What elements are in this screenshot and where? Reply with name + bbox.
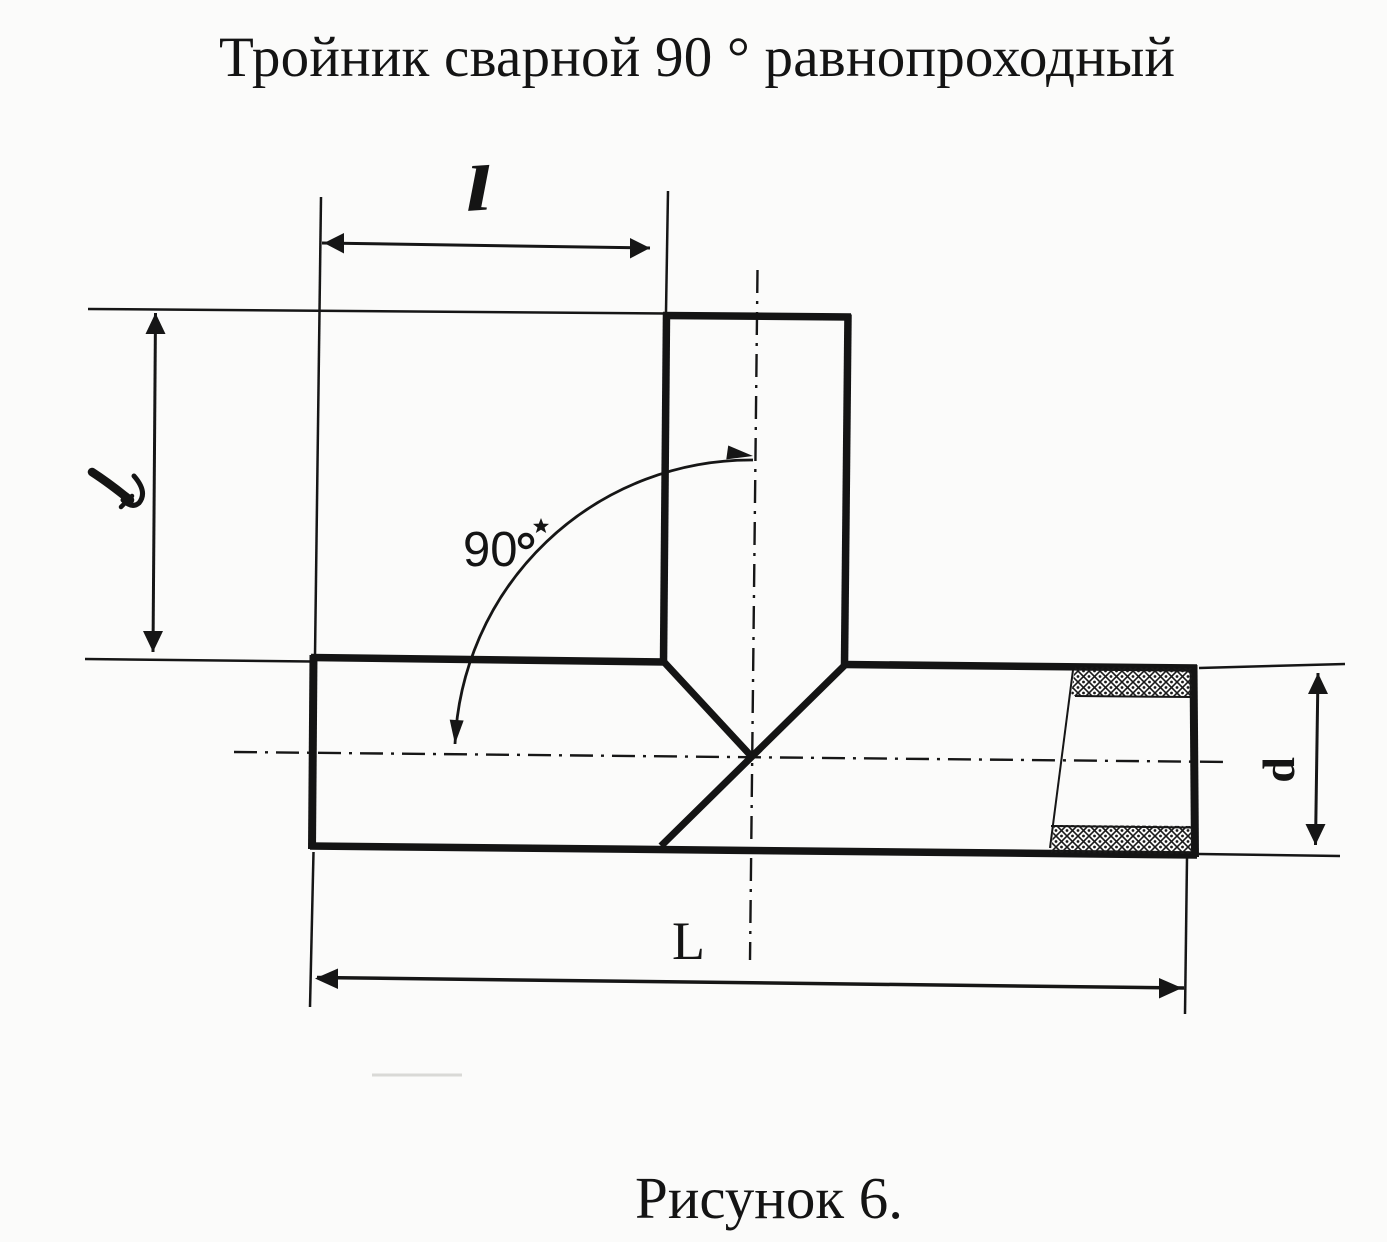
svg-text:l: l	[462, 152, 494, 225]
svg-text:L: L	[672, 911, 705, 971]
svg-text:90: 90	[463, 523, 518, 577]
svg-text:Рисунок 6.: Рисунок 6.	[635, 1165, 903, 1231]
svg-text:d: d	[1253, 757, 1304, 783]
svg-text:Тройник сварной 90 ° равнопрох: Тройник сварной 90 ° равнопроходный	[219, 26, 1175, 89]
